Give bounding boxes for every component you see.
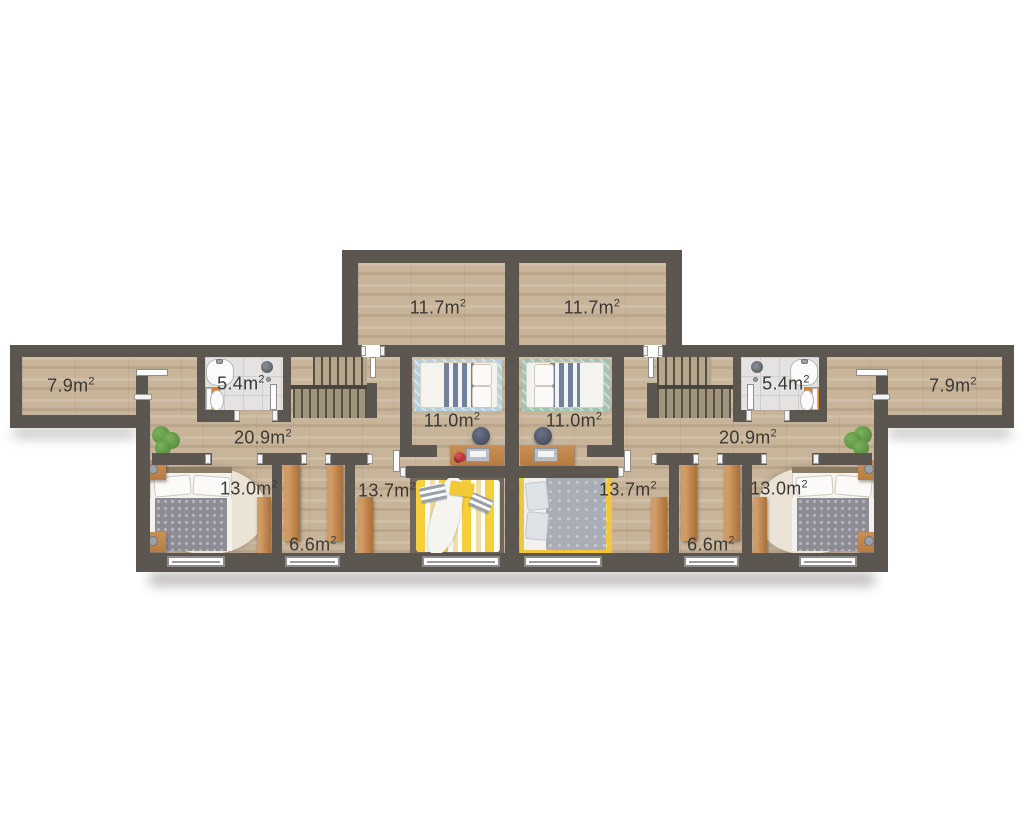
- bed-duvet: [546, 478, 606, 550]
- wall: [136, 400, 150, 572]
- wall: [342, 250, 358, 357]
- flower-pot-icon: [455, 452, 464, 461]
- bed-pillow: [472, 364, 492, 386]
- area-value: 11.0: [546, 411, 581, 431]
- door-jamb: [618, 467, 624, 477]
- area-unit: m: [459, 411, 474, 431]
- door-leaf: [856, 369, 888, 376]
- door-jamb: [361, 346, 366, 356]
- door-jamb: [134, 394, 152, 400]
- room-label-hallway-left: 20.9m2: [234, 428, 292, 449]
- wall: [283, 357, 291, 410]
- area-value: 13.7: [358, 481, 394, 501]
- area-unit: m: [243, 374, 258, 394]
- bed-pillow: [472, 386, 492, 408]
- shower-head-icon: [261, 361, 273, 373]
- area-unit: m: [256, 479, 271, 499]
- room-label-bathroom-right: 5.4m2: [762, 374, 810, 395]
- door-leaf: [270, 384, 277, 410]
- room-label-bedroom-third-left: 11.0m2: [424, 411, 481, 432]
- area-unit: m: [73, 376, 88, 396]
- door-jamb: [380, 346, 385, 356]
- area-value: 20.9: [719, 428, 755, 448]
- area-unit: m: [599, 298, 614, 318]
- wall-party: [505, 250, 519, 572]
- area-sup: 2: [460, 298, 466, 310]
- building-shadow: [888, 429, 1010, 437]
- window: [524, 556, 602, 567]
- wall: [367, 383, 377, 418]
- wall: [257, 453, 307, 465]
- area-sup: 2: [286, 428, 292, 440]
- area-sup: 2: [728, 535, 734, 547]
- door-jamb: [813, 454, 819, 464]
- area-value: 13.0: [220, 479, 256, 499]
- shower-knob-icon: [266, 377, 271, 382]
- laptop-icon: [466, 448, 490, 462]
- door-jamb: [761, 454, 767, 464]
- room-label-attic-right: 11.7m2: [564, 298, 621, 319]
- area-sup: 2: [614, 298, 620, 310]
- area-sup: 2: [803, 374, 809, 386]
- room-label-bedroom-second-left: 13.7m2: [358, 481, 416, 502]
- area-value: 13.0: [750, 479, 786, 499]
- wardrobe-panel: [753, 497, 767, 553]
- area-unit: m: [788, 374, 803, 394]
- area-value: 13.7: [599, 480, 635, 500]
- wardrobe-panel: [257, 497, 271, 553]
- wall: [400, 357, 412, 445]
- area-sup: 2: [272, 479, 278, 491]
- wall: [666, 250, 682, 357]
- area-unit: m: [786, 479, 801, 499]
- room-label-bedroom-third-right: 11.0m2: [546, 411, 603, 432]
- room-label-wardrobe-right: 6.6m2: [687, 535, 735, 556]
- area-unit: m: [581, 411, 596, 431]
- wall: [647, 383, 657, 418]
- wall: [400, 445, 437, 457]
- room-label-wardrobe-left: 6.6m2: [289, 535, 337, 556]
- wall: [587, 445, 624, 457]
- wall: [812, 453, 872, 465]
- door-jamb: [257, 454, 263, 464]
- wardrobe-panel: [284, 465, 300, 541]
- area-unit: m: [955, 376, 970, 396]
- stairs-lower-flight-right: [657, 389, 731, 418]
- door-jamb: [367, 454, 373, 464]
- area-value: 11.7: [564, 298, 599, 318]
- wall: [519, 466, 618, 478]
- door-leaf: [370, 357, 376, 378]
- area-sup: 2: [88, 376, 94, 388]
- wardrobe-panel: [651, 497, 667, 553]
- window: [167, 556, 225, 567]
- wall: [138, 553, 886, 572]
- bed-pillow: [525, 511, 549, 541]
- bed-pillow: [525, 481, 550, 511]
- door-jamb: [784, 410, 790, 421]
- laptop-icon: [534, 448, 558, 462]
- wall: [874, 400, 888, 572]
- door-jamb: [658, 346, 663, 356]
- area-value: 6.6: [687, 535, 713, 555]
- door-jamb: [746, 410, 752, 421]
- door-jamb: [205, 454, 211, 464]
- room-label-bedroom-main-right: 13.0m2: [750, 479, 808, 500]
- area-value: 20.9: [234, 428, 270, 448]
- area-sup: 2: [651, 480, 657, 492]
- building-shadow: [150, 573, 874, 585]
- area-value: 5.4: [217, 374, 243, 394]
- lamp-icon: [864, 464, 874, 474]
- area-unit: m: [270, 428, 285, 448]
- area-value: 7.9: [47, 376, 73, 396]
- door-jamb: [400, 467, 406, 477]
- room-label-bedroom-main-left: 13.0m2: [220, 479, 278, 500]
- wall: [884, 415, 1014, 428]
- wall: [380, 345, 505, 357]
- wall: [519, 345, 644, 357]
- door-jamb: [693, 454, 699, 464]
- faucet-icon: [801, 359, 808, 364]
- wardrobe-panel: [681, 465, 697, 541]
- room-label-bathroom-left: 5.4m2: [217, 374, 265, 395]
- window: [422, 556, 500, 567]
- wardrobe-panel: [327, 465, 343, 541]
- door-jamb: [272, 410, 278, 421]
- area-sup: 2: [474, 411, 480, 423]
- room-label-bedroom-second-right: 13.7m2: [599, 480, 657, 501]
- window: [799, 556, 857, 567]
- area-sup: 2: [410, 481, 416, 493]
- area-unit: m: [635, 480, 650, 500]
- floor-plan: 7.9m2 5.4m2 20.9m2 13.0m2 6.6m2 13.7m2 1…: [0, 0, 1024, 819]
- area-unit: m: [445, 298, 460, 318]
- area-value: 11.7: [410, 298, 445, 318]
- door-leaf: [624, 450, 631, 472]
- area-unit: m: [755, 428, 770, 448]
- room-label-hallway-right: 20.9m2: [719, 428, 777, 449]
- door-jamb: [872, 394, 890, 400]
- building-shadow: [14, 429, 136, 437]
- wall: [152, 453, 212, 465]
- door-leaf: [747, 384, 754, 410]
- area-unit: m: [713, 535, 728, 555]
- room-label-side-room-left: 7.9m2: [47, 376, 95, 397]
- wall: [406, 466, 505, 478]
- wall: [10, 415, 140, 428]
- area-value: 11.0: [424, 411, 459, 431]
- door-jamb: [651, 454, 657, 464]
- bed-pillow: [534, 364, 554, 386]
- bed-blanket: [550, 363, 580, 407]
- door-leaf: [648, 357, 654, 378]
- stairs-upper-flight-right: [657, 357, 711, 385]
- area-sup: 2: [596, 411, 602, 423]
- wall: [612, 357, 624, 445]
- area-sup: 2: [771, 428, 777, 440]
- bed-blanket: [444, 363, 474, 407]
- area-unit: m: [394, 481, 409, 501]
- door-jamb: [301, 454, 307, 464]
- area-value: 6.6: [289, 535, 315, 555]
- area-value: 5.4: [762, 374, 788, 394]
- shower-head-icon: [751, 361, 763, 373]
- faucet-icon: [216, 359, 223, 364]
- door-jamb: [643, 346, 648, 356]
- area-sup: 2: [258, 374, 264, 386]
- door-leaf: [136, 369, 168, 376]
- area-sup: 2: [330, 535, 336, 547]
- shower-knob-icon: [753, 377, 758, 382]
- door-jamb: [717, 454, 723, 464]
- wall: [784, 410, 827, 422]
- lamp-icon: [864, 536, 874, 546]
- wall: [10, 345, 362, 357]
- door-jamb: [234, 410, 240, 421]
- stairs-upper-flight-left: [313, 357, 367, 385]
- room-label-attic-left: 11.7m2: [410, 298, 467, 319]
- window: [285, 556, 340, 567]
- wardrobe-panel: [724, 465, 740, 541]
- wardrobe-panel: [357, 497, 373, 553]
- area-unit: m: [315, 535, 330, 555]
- door-jamb: [325, 454, 331, 464]
- wall: [662, 345, 1014, 357]
- room-label-side-room-right: 7.9m2: [929, 376, 977, 397]
- door-leaf: [393, 450, 400, 472]
- window: [684, 556, 739, 567]
- wall: [733, 357, 741, 410]
- area-sup: 2: [970, 376, 976, 388]
- area-sup: 2: [802, 479, 808, 491]
- stairs-lower-flight-left: [293, 389, 367, 418]
- area-value: 7.9: [929, 376, 955, 396]
- bed-pillow: [534, 386, 554, 408]
